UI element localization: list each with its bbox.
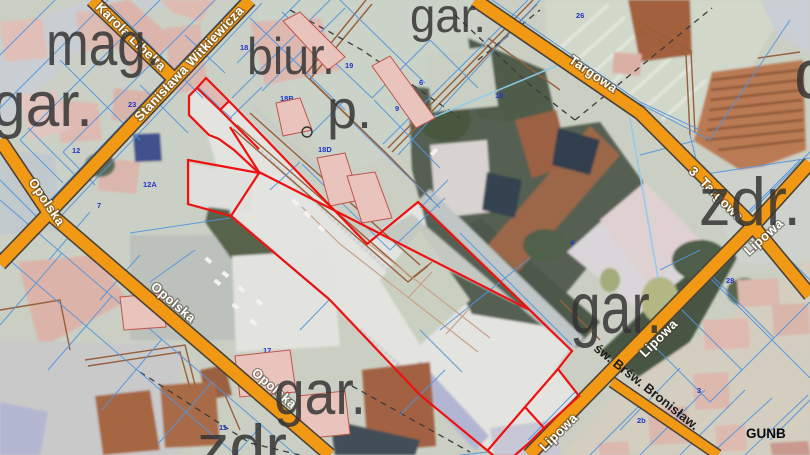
svg-text:mag.: mag. [46,10,160,79]
svg-text:gar.: gar. [570,269,662,349]
svg-text:3: 3 [697,386,701,395]
svg-text:28: 28 [726,276,734,285]
svg-text:GUNB: GUNB [746,426,786,441]
svg-text:12A: 12A [143,180,157,189]
svg-text:zdr.: zdr. [699,164,801,240]
svg-text:p.: p. [327,78,372,140]
svg-text:18D: 18D [318,145,332,154]
svg-text:23: 23 [128,100,136,109]
svg-text:d: d [794,35,810,113]
svg-text:zdr: zdr [197,413,287,455]
svg-text:gar.: gar. [410,0,486,43]
svg-text:gar.: gar. [0,70,93,140]
svg-text:2b: 2b [637,416,646,425]
svg-text:19: 19 [345,61,353,70]
svg-text:26: 26 [576,11,584,20]
svg-text:biur.: biur. [247,28,335,86]
svg-text:9: 9 [395,104,399,113]
svg-text:18: 18 [495,91,503,100]
svg-text:6: 6 [419,78,423,87]
svg-text:7: 7 [97,201,101,210]
svg-text:12: 12 [72,146,80,155]
svg-text:gar.: gar. [274,359,366,428]
